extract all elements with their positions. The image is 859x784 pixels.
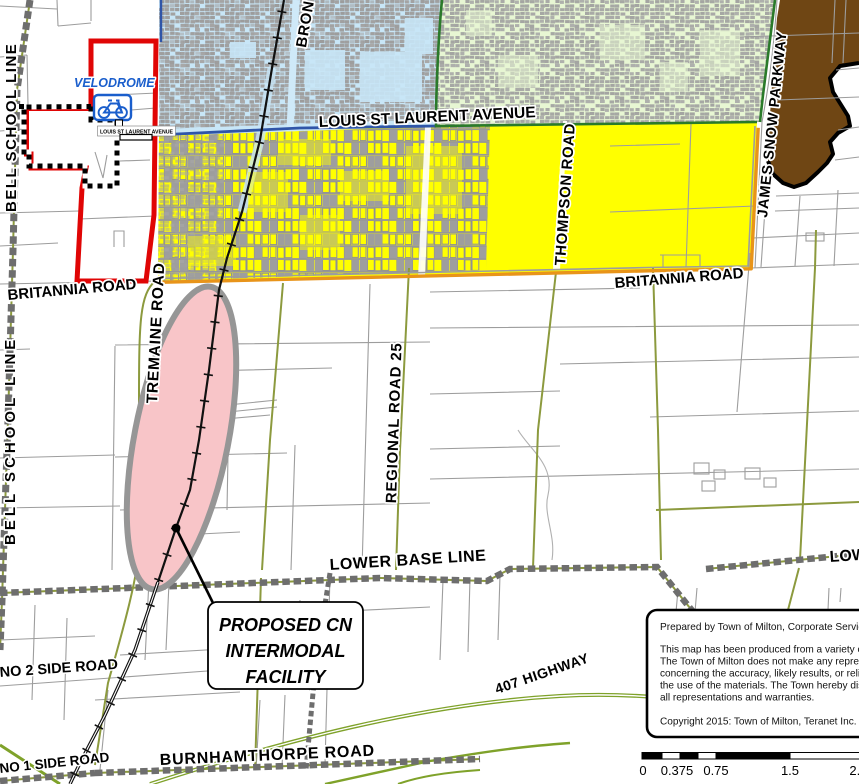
- svg-text:INTERMODAL: INTERMODAL: [226, 641, 346, 661]
- svg-text:BRITANNIA ROAD: BRITANNIA ROAD: [7, 276, 137, 304]
- svg-text:all representations and warran: all representations and warranties.: [660, 693, 814, 704]
- svg-text:LOWER B: LOWER B: [829, 544, 859, 566]
- svg-text:1.5: 1.5: [781, 763, 799, 778]
- svg-text:BELL SCHOOL LINE: BELL SCHOOL LINE: [3, 43, 20, 212]
- svg-text:LOWER BASE LINE: LOWER BASE LINE: [329, 547, 487, 574]
- svg-text:0.375: 0.375: [661, 763, 694, 778]
- svg-text:The Town of Milton does not ma: The Town of Milton does not make any rep…: [660, 657, 859, 668]
- svg-text:407 HIGHWAY: 407 HIGHWAY: [493, 650, 591, 697]
- svg-text:REGIONAL ROAD 25: REGIONAL ROAD 25: [383, 342, 406, 503]
- svg-text:VELODROME: VELODROME: [74, 76, 155, 90]
- svg-text:PROPOSED CN: PROPOSED CN: [219, 615, 353, 635]
- svg-text:FACILITY: FACILITY: [246, 667, 328, 687]
- svg-text:2.25: 2.25: [849, 763, 859, 778]
- svg-text:This map has been produced fro: This map has been produced from a variet…: [660, 645, 859, 656]
- svg-text:Prepared by Town of Milton, Co: Prepared by Town of Milton, Corporate Se…: [660, 622, 859, 633]
- svg-text:Copyright 2015: Town of Milton: Copyright 2015: Town of Milton, Teranet …: [660, 717, 857, 728]
- svg-text:concerning the accuracy, likel: concerning the accuracy, likely results,…: [660, 669, 859, 680]
- svg-text:0.75: 0.75: [703, 763, 728, 778]
- svg-text:NO 2 SIDE ROAD: NO 2 SIDE ROAD: [0, 657, 118, 681]
- svg-text:0: 0: [639, 763, 646, 778]
- svg-text:the use of the materials. The: the use of the materials. The Town hereb…: [660, 681, 859, 692]
- svg-text:BELL SCHOOL LINE: BELL SCHOOL LINE: [2, 336, 19, 545]
